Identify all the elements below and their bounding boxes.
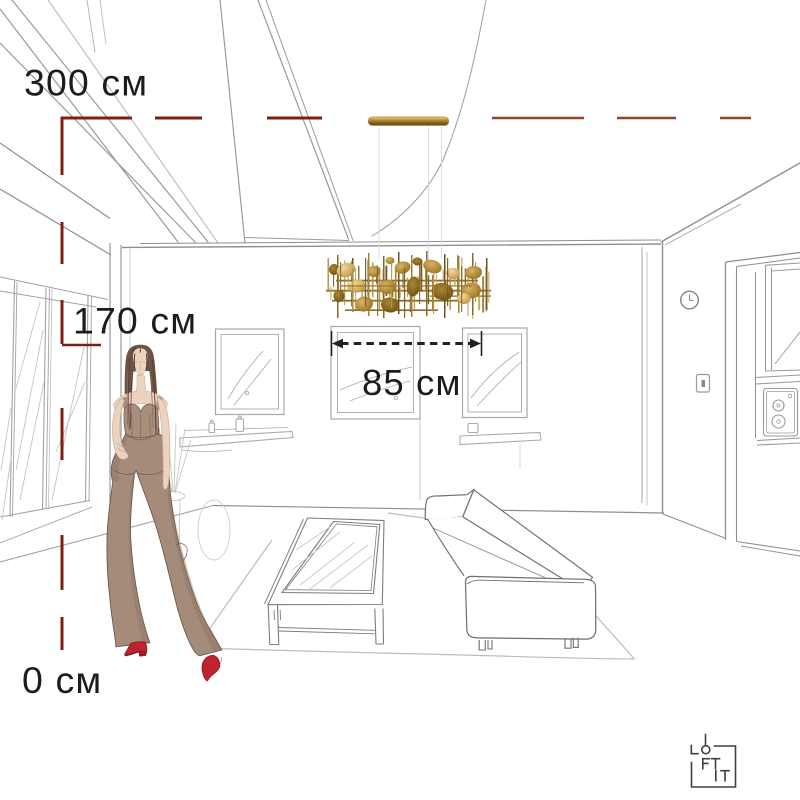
svg-text:170 см: 170 см: [73, 300, 197, 342]
svg-text:0 см: 0 см: [22, 659, 102, 701]
svg-text:85 см: 85 см: [362, 362, 462, 403]
svg-text:300 см: 300 см: [24, 62, 148, 104]
